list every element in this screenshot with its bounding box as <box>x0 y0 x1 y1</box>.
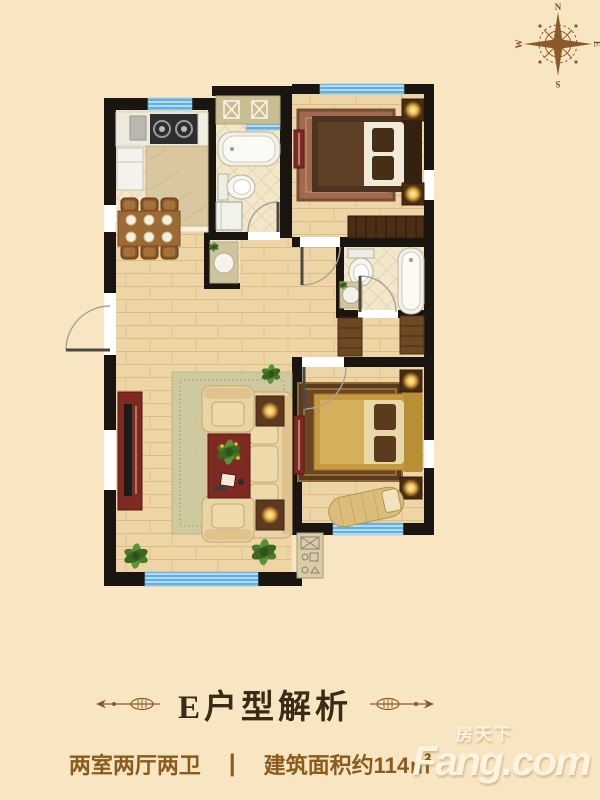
compass-s-label: S <box>555 79 560 89</box>
coffee-table-icon <box>208 434 250 498</box>
dining-set <box>118 198 180 259</box>
nightstand-lamp-icon <box>402 99 424 121</box>
stove-icon <box>150 114 198 144</box>
side-table-icon <box>256 396 284 426</box>
fridge-icon <box>117 148 143 190</box>
compass-n-label: N <box>555 2 562 12</box>
side-table-icon <box>256 500 284 530</box>
fang-logo: 房天下 Fang.com <box>412 726 596 782</box>
basin-icon <box>214 253 234 273</box>
area-spec: 建筑面积约114㎡ <box>264 748 432 780</box>
spec-divider: | <box>229 750 236 778</box>
compass-w-label: W <box>514 40 524 49</box>
closet-icon <box>400 316 424 354</box>
nightstand-lamp-icon <box>400 370 422 392</box>
title-flourish-right-icon <box>368 696 434 712</box>
kitchen-sink <box>130 116 146 140</box>
living-room-window <box>145 572 258 586</box>
basin-alcove <box>209 242 238 283</box>
page-title: E户型解析 <box>178 680 352 728</box>
floorplan-page: N S W E E户型解析 两室两厅两卫 | 建筑面积约114㎡ 房天下 F <box>0 0 600 800</box>
nightstand-lamp-icon <box>402 183 424 205</box>
fang-logo-en: Fang.com <box>412 741 596 782</box>
nightstand-lamp-icon <box>400 477 422 499</box>
vanity-counter <box>216 96 280 124</box>
bed-2-icon <box>314 392 422 472</box>
armchair-icon <box>202 386 254 432</box>
armchair-icon <box>202 496 254 542</box>
tv-stand-icon <box>118 392 142 510</box>
washing-machine-icon <box>216 202 242 230</box>
bathtub-2-icon <box>398 248 424 314</box>
layout-spec: 两室两厅两卫 <box>69 748 201 780</box>
bed-1-icon <box>312 114 422 194</box>
closet-icon <box>338 318 362 356</box>
title-flourish-left-icon <box>96 696 162 712</box>
basin-2-icon <box>338 280 362 308</box>
bathtub-1-icon <box>218 132 280 166</box>
kitchen-cabinet <box>198 112 208 150</box>
floor-plan <box>66 84 434 586</box>
title-row: E户型解析 <box>0 680 530 728</box>
wardrobe-1-icon <box>348 216 424 238</box>
bedroom-1-window <box>320 84 404 94</box>
balcony-utility <box>297 533 323 578</box>
compass-e-label: E <box>592 41 600 47</box>
toilet-1-icon <box>218 174 255 200</box>
kitchen-window <box>148 98 192 110</box>
